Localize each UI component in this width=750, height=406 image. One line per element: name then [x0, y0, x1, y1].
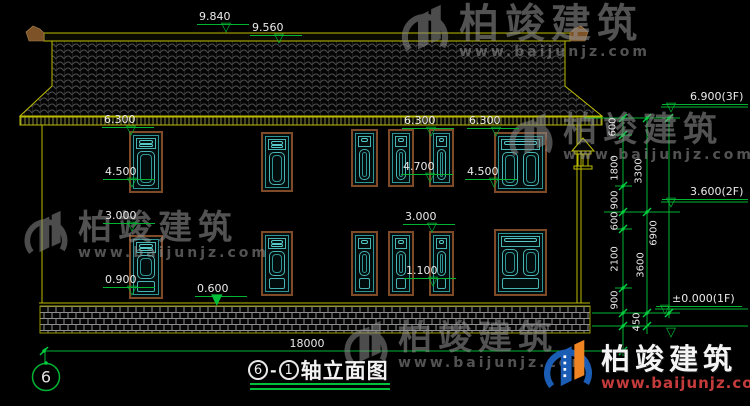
watermark-url: www.baijunjz.com — [563, 147, 750, 163]
dim-3600: 3600 — [636, 252, 647, 277]
dim-6900: 6900 — [649, 220, 660, 245]
elevation-triangle-icon: ▽ — [127, 221, 155, 232]
elevation-triangle-icon: ▽ — [666, 327, 676, 338]
elevation-drawing-canvas: 柏竣建筑 www.baijunjz.com 柏竣建筑 www.baijunjz.… — [0, 0, 750, 406]
window-2f-2 — [261, 132, 293, 192]
window-2f-3 — [351, 129, 378, 187]
elevation-marker-1100: 1.100▽ — [404, 265, 456, 287]
brand-name: 柏竣建筑 — [601, 344, 750, 374]
title-underline — [250, 383, 390, 385]
watermark-url: www.baijunjz.com — [78, 245, 269, 261]
dim-600-b: 600 — [610, 211, 621, 230]
elevation-triangle-icon: ▽ — [221, 22, 249, 33]
elevation-triangle-icon: ▽ — [428, 276, 456, 287]
brand-logo: 柏竣建筑 www.baijunjz.com — [539, 338, 750, 398]
drawing-title: 6 - 1 轴立面图 — [248, 355, 389, 385]
elevation-marker-4700: 4.700▽ — [401, 161, 453, 183]
title-separator: - — [270, 361, 277, 380]
watermark-building-icon — [20, 210, 72, 262]
elevation-triangle-icon: ▽ — [127, 285, 155, 296]
dim-900-b: 900 — [610, 290, 621, 309]
elevation-marker-4500-mid: 4.500▽ — [465, 166, 517, 188]
elevation-marker-eave-mid2: 6.300▽ — [467, 115, 519, 137]
dim-18000: 18000 — [290, 337, 325, 350]
elevation-triangle-icon: ▽ — [489, 177, 517, 188]
elevation-triangle-icon: ▽ — [666, 102, 748, 113]
elevation-triangle-icon: ▽ — [666, 197, 748, 208]
elevation-triangle-icon: ▽ — [274, 33, 302, 44]
axis-bubble-label: 6 — [41, 368, 51, 387]
elevation-marker-0900-left: 0.900▽ — [103, 274, 155, 296]
elevation-triangle-icon: ▽ — [127, 177, 155, 188]
title-text: 轴立面图 — [301, 355, 389, 385]
elevation-marker-2f: 3.600(2F)▽ — [662, 186, 748, 208]
watermark-top: 柏竣建筑 www.baijunjz.com — [397, 4, 650, 60]
dim-900-a: 900 — [610, 190, 621, 209]
elevation-triangle-icon: ▽ — [660, 304, 742, 315]
elevation-triangle-icon: ▽ — [491, 126, 519, 137]
elevation-marker-3f: 6.900(3F)▽ — [662, 91, 748, 113]
watermark-url: www.baijunjz.com — [459, 44, 650, 60]
elevation-marker-1f: ±0.000(1F)▽ — [656, 293, 742, 315]
watermark-brand: 柏竣建筑 — [563, 113, 750, 147]
title-underline — [250, 388, 390, 390]
elevation-triangle-icon: ▽ — [425, 172, 453, 183]
brand-building-icon — [539, 338, 597, 398]
watermark-right: 柏竣建筑 www.baijunjz.com — [505, 112, 750, 164]
title-axis-to: 1 — [279, 360, 299, 380]
elevation-marker-3000-mid: 3.000▽ — [403, 211, 455, 233]
elevation-marker-3000-left: 3.000▽ — [103, 210, 155, 232]
elevation-marker-ridge: 9.560▽ — [250, 22, 302, 44]
ridge-ornament-left-icon — [26, 26, 44, 41]
elevation-marker-4500-left: 4.500▽ — [103, 166, 155, 188]
elevation-marker-ridge-top: 9.840▽ — [197, 11, 249, 33]
dim-1800: 1800 — [610, 155, 621, 180]
title-axis-from: 6 — [248, 360, 268, 380]
elevation-triangle-icon: ▽ — [427, 222, 455, 233]
dim-2100: 2100 — [610, 246, 621, 271]
elevation-triangle-icon: ▽ — [126, 125, 154, 136]
elevation-marker-0600: 0.600▼ — [195, 283, 247, 305]
brand-url: www.baijunjz.com — [601, 374, 750, 392]
elevation-marker-eave-left: 6.300▽ — [102, 114, 154, 136]
watermark-building-icon — [397, 4, 453, 60]
elevation-triangle-icon: ▽ — [426, 126, 454, 137]
window-1f-3 — [351, 231, 378, 296]
window-1f-6 — [494, 229, 547, 296]
elevation-marker-eave-mid1: 6.300▽ — [402, 115, 454, 137]
dim-3300: 3300 — [634, 158, 645, 183]
elevation-triangle-icon: ▼ — [211, 294, 247, 305]
watermark-brand: 柏竣建筑 — [459, 4, 650, 44]
dim-600-a: 600 — [608, 117, 619, 136]
dim-450: 450 — [632, 312, 643, 331]
